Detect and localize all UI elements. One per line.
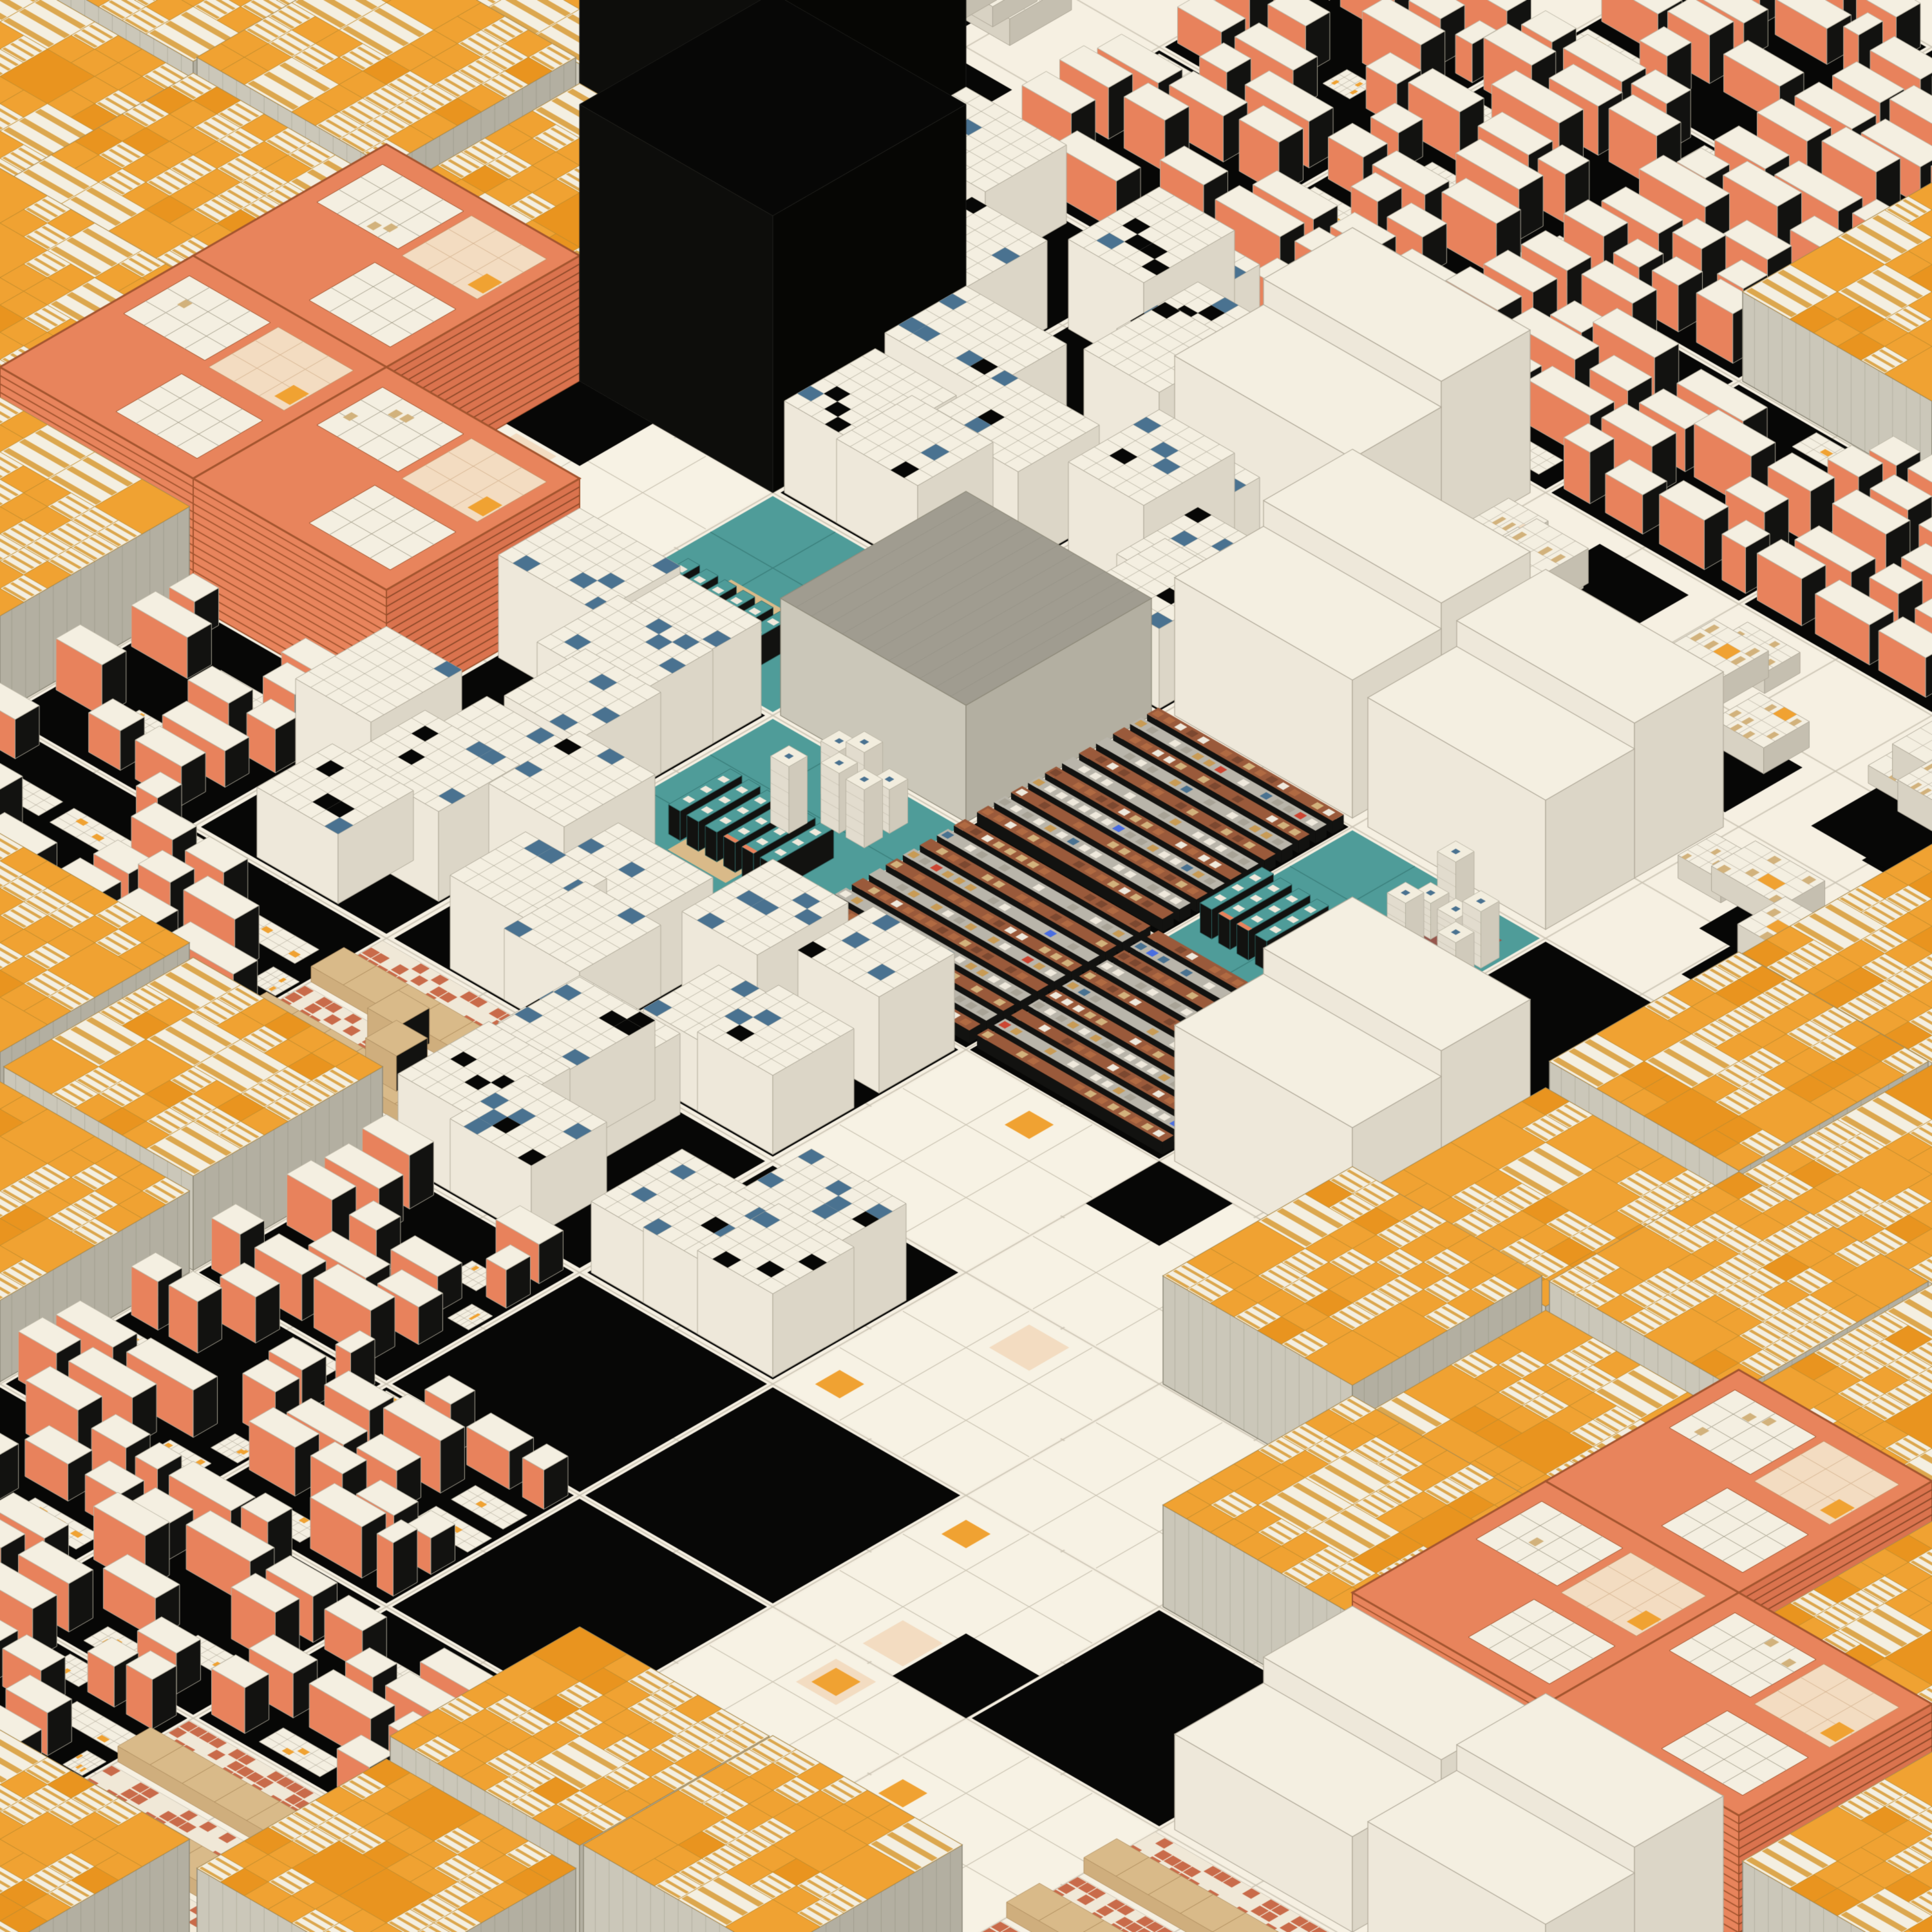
generative-city-artwork (0, 0, 1932, 1932)
isometric-city-canvas (0, 0, 1932, 1932)
